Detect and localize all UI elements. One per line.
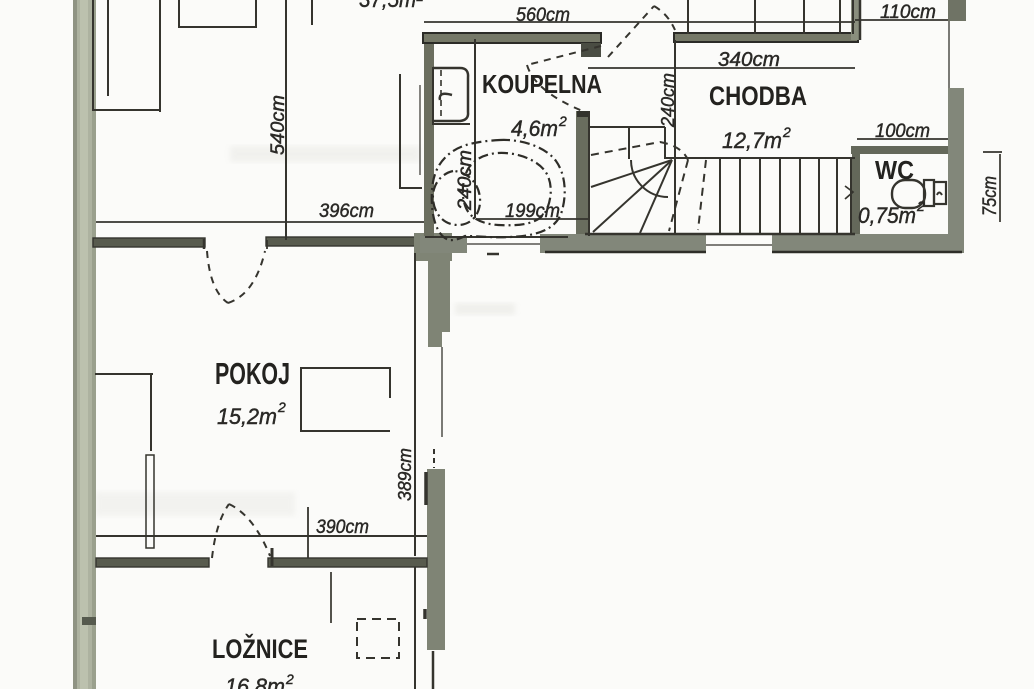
svg-text:2: 2 [782,124,791,140]
svg-text:LOŽNICE: LOŽNICE [212,633,308,664]
svg-text:389cm: 389cm [395,448,415,501]
svg-text:240cm: 240cm [455,150,476,211]
svg-text:2: 2 [558,113,567,129]
svg-text:390cm: 390cm [316,517,369,538]
svg-text:KOUPELNA: KOUPELNA [482,69,602,99]
svg-text:CHODBA: CHODBA [709,81,807,111]
svg-text:WC: WC [875,155,914,185]
svg-text:110cm: 110cm [880,2,936,23]
svg-text:2: 2 [285,671,294,687]
svg-text:POKOJ: POKOJ [215,356,290,391]
svg-text:2: 2 [916,198,925,214]
svg-text:4,6m: 4,6m [511,116,558,141]
svg-text:37,5m²: 37,5m² [359,0,424,12]
svg-text:75cm: 75cm [980,176,1001,216]
svg-text:100cm: 100cm [875,121,930,142]
svg-text:560cm: 560cm [516,5,570,26]
svg-text:16,8m: 16,8m [225,674,285,689]
svg-text:540cm: 540cm [268,95,289,155]
svg-text:240cm: 240cm [658,73,678,128]
svg-text:0,75m: 0,75m [858,203,916,228]
svg-text:340cm: 340cm [718,49,780,71]
svg-text:12,7m: 12,7m [722,128,782,153]
svg-text:15,2m: 15,2m [217,404,277,429]
svg-text:199cm: 199cm [505,201,560,222]
svg-text:2: 2 [277,399,286,415]
svg-text:396cm: 396cm [319,201,374,222]
